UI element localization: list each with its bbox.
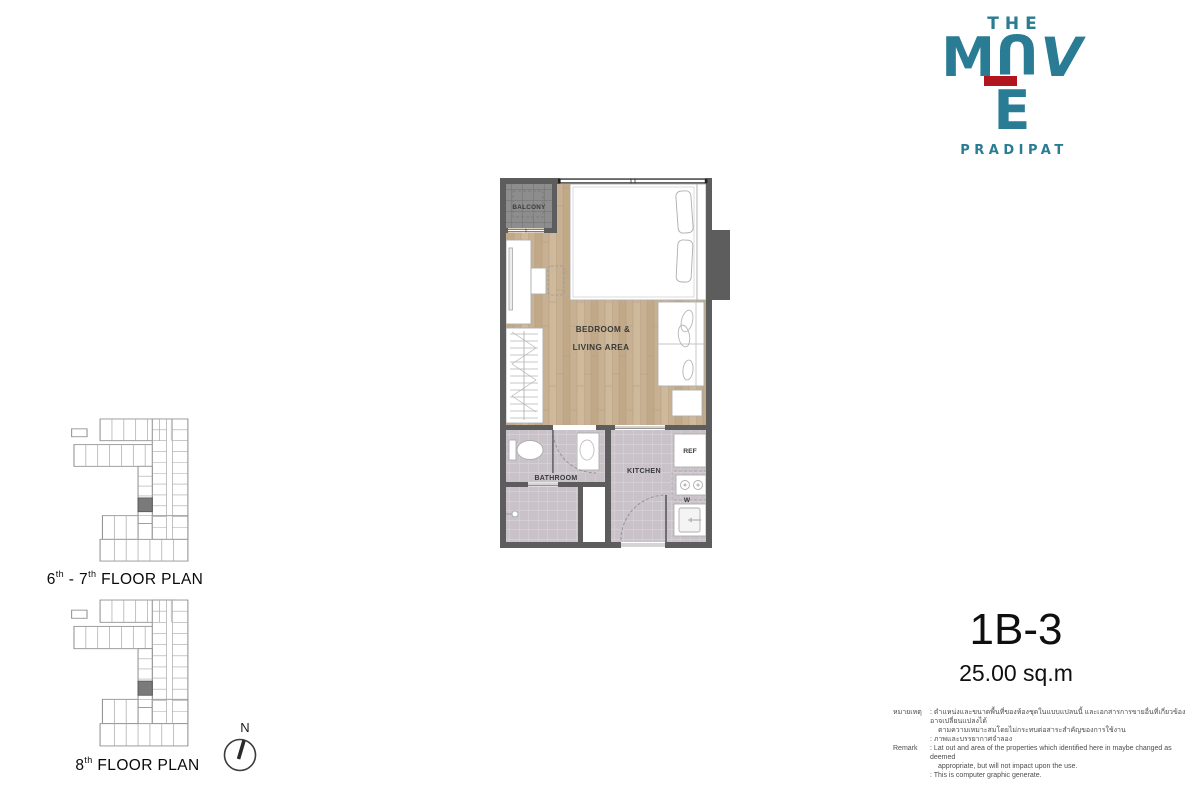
floor-plan-label-8: 8th FLOOR PLAN	[55, 756, 220, 775]
kitchen-label: KITCHEN	[627, 466, 661, 475]
logo-letter-e: E	[994, 79, 1031, 142]
remark-text: : This is computer graphic generate.	[930, 771, 1193, 780]
bedroom-label-line2: LIVING AREA	[573, 343, 630, 352]
remark-line: หมายเหตุ : ตำแหน่งและขนาดพื้นที่ของห้องช…	[893, 708, 1193, 726]
wall-living-divider	[665, 425, 706, 430]
bathroom-label: BATHROOM	[534, 475, 577, 482]
remark-line: Remark : Lat out and area of the propert…	[893, 744, 1193, 762]
wall-bath-kitchen	[605, 425, 611, 542]
wall-bath-shower	[558, 482, 605, 487]
shower-threshold	[528, 483, 558, 487]
unit-floor-plan: BALCONY BEDROOM & LIVING AREA BATHROOM K…	[500, 178, 730, 548]
remark-label-empty	[893, 771, 930, 780]
remark-label-empty	[893, 762, 930, 771]
mini-floor-plan-6-7-drawing	[55, 417, 195, 565]
logo-letter-v: V	[1035, 32, 1087, 85]
compass-north-label: N	[240, 720, 249, 735]
unit-name: 1B-3	[880, 606, 1152, 654]
wall-stub	[544, 228, 557, 233]
wall-nook	[578, 487, 583, 542]
window-end	[558, 179, 561, 183]
mini-floor-plan-8	[55, 598, 195, 755]
remark-line: ตามความเหมาะสมโดยไม่กระทบต่อสาระสำคัญของ…	[893, 726, 1193, 735]
mini-floor-plan-6-7	[55, 417, 195, 570]
remark-line: appropriate, but will not impact upon th…	[893, 762, 1193, 771]
remark-text: : ตำแหน่งและขนาดพื้นที่ของห้องชุดในแบบแป…	[930, 708, 1193, 726]
label-6-sup: th	[56, 569, 64, 579]
remark-line: : ภาพและบรรยากาศจำลอง	[893, 735, 1193, 744]
wall-balcony-divider	[552, 184, 557, 228]
toilet-bowl	[517, 441, 543, 460]
logo-subtitle: PRADIPAT	[923, 143, 1101, 158]
balcony-label: BALCONY	[512, 204, 546, 211]
remark-line: : This is computer graphic generate.	[893, 771, 1193, 780]
shower-head-icon	[512, 511, 518, 517]
unit-area: 25.00 sq.m	[880, 660, 1152, 686]
remark-text: appropriate, but will not impact upon th…	[930, 762, 1193, 771]
window-end	[705, 179, 708, 183]
wall-living-divider	[500, 425, 553, 430]
wall-bottom	[665, 542, 712, 548]
wall-bath-shower	[500, 482, 528, 487]
refrigerator-label: REF	[683, 448, 697, 455]
remark-label-thai: หมายเหตุ	[893, 708, 930, 726]
label-8-sup: th	[84, 755, 92, 765]
wardrobe	[506, 328, 543, 423]
stove-burner-center	[684, 484, 687, 487]
wall-left	[500, 178, 506, 548]
bathroom-door-panel	[552, 430, 554, 473]
entrance-door-panel	[665, 495, 667, 542]
remark-text: : Lat out and area of the properties whi…	[930, 744, 1193, 762]
unit-floor-plan-drawing: BALCONY BEDROOM & LIVING AREA BATHROOM K…	[500, 178, 730, 548]
pillow	[676, 240, 693, 283]
mini-floor-plan-8-drawing	[55, 598, 195, 750]
shaft-block	[706, 230, 730, 300]
tv	[509, 248, 513, 310]
bed-side-rail	[697, 184, 706, 300]
logo-letter-u-inverted: U	[995, 26, 1039, 79]
compass-drawing: N	[218, 720, 266, 776]
page: THE MUVE PRADIPAT	[0, 0, 1200, 800]
wall-bottom	[500, 542, 621, 548]
remark-text: ตามความเหมาะสมโดยไม่กระทบต่อสาระสำคัญของ…	[930, 726, 1193, 735]
bedroom-label-line1: BEDROOM &	[576, 325, 631, 334]
remark-text: : ภาพและบรรยากาศจำลอง	[930, 735, 1193, 744]
side-table	[531, 268, 546, 294]
remark-label-empty	[893, 735, 930, 744]
brand-logo: THE MUVE PRADIPAT	[923, 14, 1101, 158]
washer-label: W	[684, 497, 691, 504]
label-floor-plan-text: FLOOR PLAN	[93, 757, 200, 774]
pillow	[676, 190, 694, 233]
toilet-tank	[509, 440, 516, 460]
remark-label-en: Remark	[893, 744, 930, 762]
label-joiner: - 7	[64, 571, 88, 588]
remark-label-empty	[893, 726, 930, 735]
stove-burner-center	[697, 484, 700, 487]
label-7-sup: th	[88, 569, 96, 579]
logo-red-underline	[984, 76, 1017, 86]
wall-stub	[500, 228, 508, 233]
compass: N	[218, 720, 266, 776]
coffee-table	[672, 390, 702, 416]
remark-block: หมายเหตุ : ตำแหน่งและขนาดพื้นที่ของห้องช…	[893, 708, 1193, 780]
label-floor-plan-text: FLOOR PLAN	[96, 571, 203, 588]
floor-plan-label-6-7: 6th - 7th FLOOR PLAN	[40, 570, 210, 589]
entry-nook-floor	[583, 487, 605, 542]
unit-info: 1B-3 25.00 sq.m	[880, 606, 1152, 686]
logo-muve-wordmark: MUVE	[923, 32, 1101, 138]
label-6: 6	[47, 571, 56, 588]
